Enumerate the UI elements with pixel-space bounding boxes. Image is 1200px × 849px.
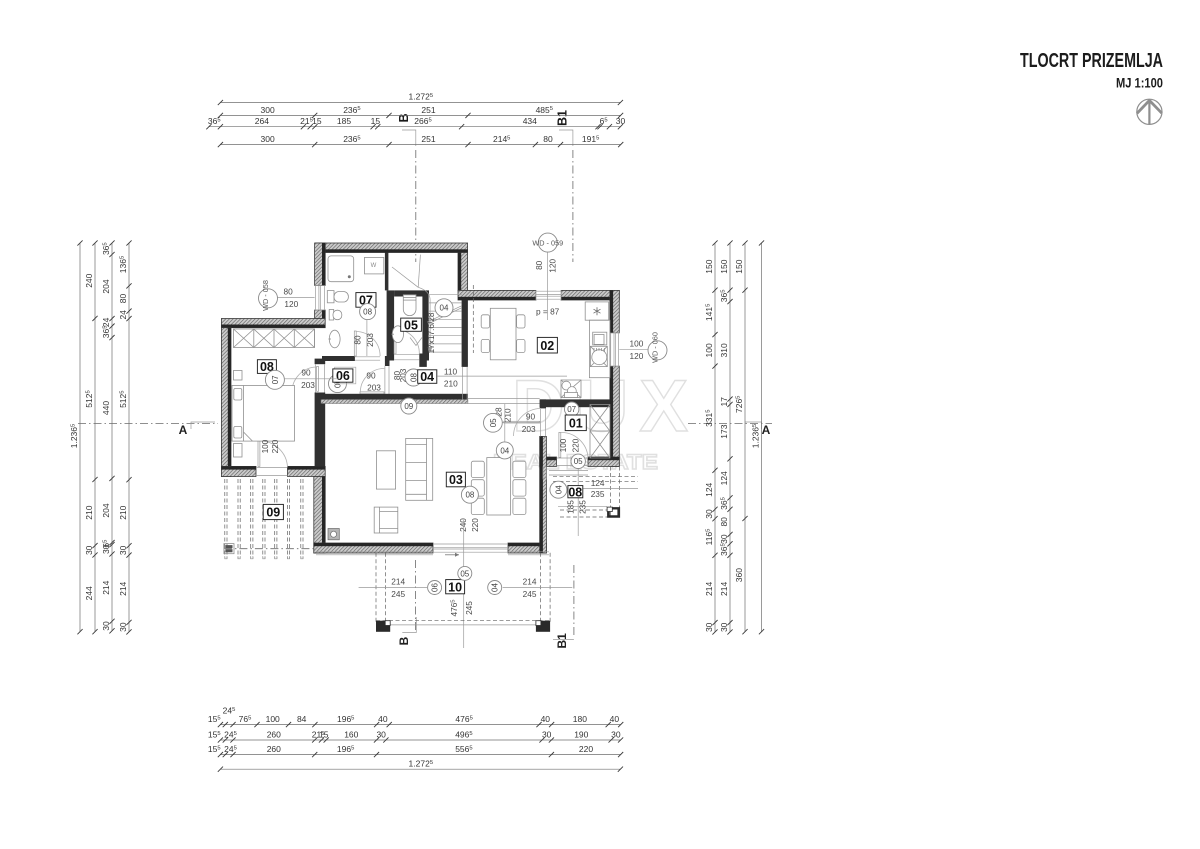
svg-text:A: A bbox=[762, 423, 771, 437]
svg-text:A: A bbox=[179, 423, 188, 437]
svg-text:07: 07 bbox=[271, 375, 280, 384]
svg-text:300: 300 bbox=[261, 105, 275, 115]
svg-text:06: 06 bbox=[336, 369, 350, 383]
svg-text:30: 30 bbox=[118, 545, 128, 555]
svg-text:1.2725: 1.2725 bbox=[409, 92, 434, 102]
svg-text:120: 120 bbox=[547, 258, 557, 272]
svg-text:04: 04 bbox=[491, 583, 500, 592]
svg-text:110: 110 bbox=[444, 367, 458, 377]
svg-text:210: 210 bbox=[84, 505, 94, 519]
svg-text:84: 84 bbox=[297, 714, 307, 724]
svg-text:06: 06 bbox=[431, 583, 440, 592]
svg-text:80: 80 bbox=[353, 335, 363, 345]
svg-text:204: 204 bbox=[101, 503, 111, 517]
svg-text:214: 214 bbox=[391, 577, 405, 587]
svg-text:244: 244 bbox=[84, 586, 94, 600]
svg-text:264: 264 bbox=[255, 116, 269, 126]
svg-text:17: 17 bbox=[719, 397, 729, 407]
svg-text:08: 08 bbox=[409, 373, 418, 382]
svg-text:100: 100 bbox=[558, 438, 568, 452]
svg-text:185: 185 bbox=[337, 116, 351, 126]
svg-text:05: 05 bbox=[574, 457, 583, 466]
svg-text:150: 150 bbox=[704, 259, 714, 273]
svg-text:04: 04 bbox=[500, 446, 509, 455]
svg-text:01: 01 bbox=[569, 416, 583, 430]
svg-text:310: 310 bbox=[719, 343, 729, 357]
svg-text:30: 30 bbox=[118, 622, 128, 632]
svg-text:100: 100 bbox=[266, 714, 280, 724]
svg-text:15: 15 bbox=[312, 116, 322, 126]
svg-text:04: 04 bbox=[420, 370, 434, 384]
svg-text:214: 214 bbox=[704, 582, 714, 596]
svg-text:30: 30 bbox=[101, 544, 111, 554]
svg-text:08: 08 bbox=[568, 485, 582, 499]
svg-text:30: 30 bbox=[704, 509, 714, 519]
svg-text:210: 210 bbox=[503, 408, 513, 422]
svg-text:235: 235 bbox=[591, 489, 605, 499]
svg-text:p = 87: p = 87 bbox=[536, 307, 560, 317]
svg-text:1.2725: 1.2725 bbox=[409, 758, 434, 768]
svg-text:WD - 059: WD - 059 bbox=[532, 238, 563, 247]
svg-text:220: 220 bbox=[579, 744, 593, 754]
svg-text:09: 09 bbox=[404, 402, 413, 411]
svg-text:220: 220 bbox=[270, 439, 280, 453]
svg-text:WD - 060: WD - 060 bbox=[651, 332, 660, 363]
svg-text:124: 124 bbox=[704, 482, 714, 496]
svg-text:30: 30 bbox=[542, 729, 552, 739]
svg-text:80: 80 bbox=[719, 517, 729, 527]
svg-text:03: 03 bbox=[449, 473, 463, 487]
svg-text:245: 245 bbox=[523, 589, 537, 599]
svg-text:30: 30 bbox=[611, 729, 621, 739]
svg-text:30: 30 bbox=[719, 534, 729, 544]
svg-text:434: 434 bbox=[523, 116, 537, 126]
svg-text:W: W bbox=[371, 263, 377, 269]
svg-text:MJ 1:100: MJ 1:100 bbox=[1116, 76, 1163, 91]
svg-text:214: 214 bbox=[118, 581, 128, 595]
svg-text:210: 210 bbox=[444, 379, 458, 389]
svg-text:40: 40 bbox=[378, 714, 388, 724]
svg-text:120: 120 bbox=[630, 351, 644, 361]
svg-text:80: 80 bbox=[534, 260, 544, 270]
svg-text:300: 300 bbox=[261, 134, 275, 144]
svg-text:203: 203 bbox=[522, 424, 536, 434]
svg-text:30: 30 bbox=[616, 116, 626, 126]
svg-text:90: 90 bbox=[301, 368, 311, 378]
svg-text:260: 260 bbox=[267, 729, 281, 739]
svg-text:180: 180 bbox=[573, 714, 587, 724]
svg-text:80: 80 bbox=[118, 294, 128, 304]
svg-text:30: 30 bbox=[719, 622, 729, 632]
svg-text:203: 203 bbox=[367, 383, 381, 393]
svg-text:440: 440 bbox=[101, 401, 111, 415]
svg-text:173: 173 bbox=[719, 424, 729, 438]
svg-text:1.2365: 1.2365 bbox=[751, 424, 761, 449]
svg-text:WD - 058: WD - 058 bbox=[261, 280, 270, 311]
svg-text:15: 15 bbox=[319, 729, 329, 739]
svg-text:240: 240 bbox=[458, 518, 468, 532]
svg-text:203: 203 bbox=[301, 380, 315, 390]
svg-text:TLOCRT PRIZEMLJA: TLOCRT PRIZEMLJA bbox=[1020, 50, 1163, 72]
svg-text:214: 214 bbox=[719, 582, 729, 596]
svg-text:100: 100 bbox=[704, 343, 714, 357]
svg-text:214: 214 bbox=[523, 577, 537, 587]
svg-text:B: B bbox=[397, 636, 411, 645]
svg-text:80: 80 bbox=[543, 134, 553, 144]
svg-text:150: 150 bbox=[734, 259, 744, 273]
svg-text:100: 100 bbox=[630, 339, 644, 349]
svg-text:251: 251 bbox=[421, 134, 435, 144]
svg-text:185: 185 bbox=[565, 500, 575, 514]
svg-text:40: 40 bbox=[610, 714, 620, 724]
svg-text:05: 05 bbox=[404, 318, 418, 332]
svg-text:251: 251 bbox=[421, 105, 435, 115]
svg-text:120: 120 bbox=[284, 299, 298, 309]
svg-text:08: 08 bbox=[465, 491, 474, 500]
svg-text:210: 210 bbox=[118, 505, 128, 519]
svg-text:B1: B1 bbox=[555, 633, 569, 649]
svg-text:204: 204 bbox=[101, 279, 111, 293]
svg-text:245: 245 bbox=[464, 601, 474, 615]
svg-text:02: 02 bbox=[540, 339, 554, 353]
svg-text:B: B bbox=[397, 113, 411, 122]
svg-text:30: 30 bbox=[704, 622, 714, 632]
svg-text:235: 235 bbox=[578, 500, 588, 514]
svg-text:04: 04 bbox=[554, 485, 563, 494]
svg-text:30: 30 bbox=[101, 621, 111, 631]
svg-text:07: 07 bbox=[567, 405, 576, 414]
svg-text:1.2365: 1.2365 bbox=[69, 424, 79, 449]
svg-text:B1: B1 bbox=[556, 110, 570, 126]
svg-text:40: 40 bbox=[541, 714, 551, 724]
svg-text:05: 05 bbox=[460, 569, 469, 578]
svg-text:05: 05 bbox=[489, 418, 498, 427]
svg-text:260: 260 bbox=[267, 744, 281, 754]
svg-text:15: 15 bbox=[371, 116, 381, 126]
svg-text:17x17.6/28: 17x17.6/28 bbox=[426, 312, 436, 353]
svg-text:90: 90 bbox=[526, 412, 536, 422]
svg-text:220: 220 bbox=[570, 438, 580, 452]
svg-text:04: 04 bbox=[440, 304, 449, 313]
svg-text:245: 245 bbox=[391, 589, 405, 599]
svg-text:30: 30 bbox=[376, 729, 386, 739]
svg-text:220: 220 bbox=[470, 518, 480, 532]
svg-text:100: 100 bbox=[260, 439, 270, 453]
svg-text:124: 124 bbox=[591, 478, 605, 488]
svg-text:90: 90 bbox=[366, 371, 376, 381]
svg-text:150: 150 bbox=[719, 259, 729, 273]
svg-text:80: 80 bbox=[283, 286, 293, 296]
svg-text:360: 360 bbox=[734, 568, 744, 582]
svg-text:214: 214 bbox=[101, 580, 111, 594]
svg-text:190: 190 bbox=[574, 729, 588, 739]
svg-text:10: 10 bbox=[448, 580, 462, 594]
svg-text:30: 30 bbox=[84, 545, 94, 555]
svg-text:124: 124 bbox=[719, 471, 729, 485]
svg-text:08: 08 bbox=[363, 308, 372, 317]
svg-text:24: 24 bbox=[118, 310, 128, 320]
svg-text:203: 203 bbox=[365, 333, 375, 347]
svg-text:160: 160 bbox=[344, 729, 358, 739]
svg-text:09: 09 bbox=[266, 506, 280, 520]
svg-text:240: 240 bbox=[84, 273, 94, 287]
